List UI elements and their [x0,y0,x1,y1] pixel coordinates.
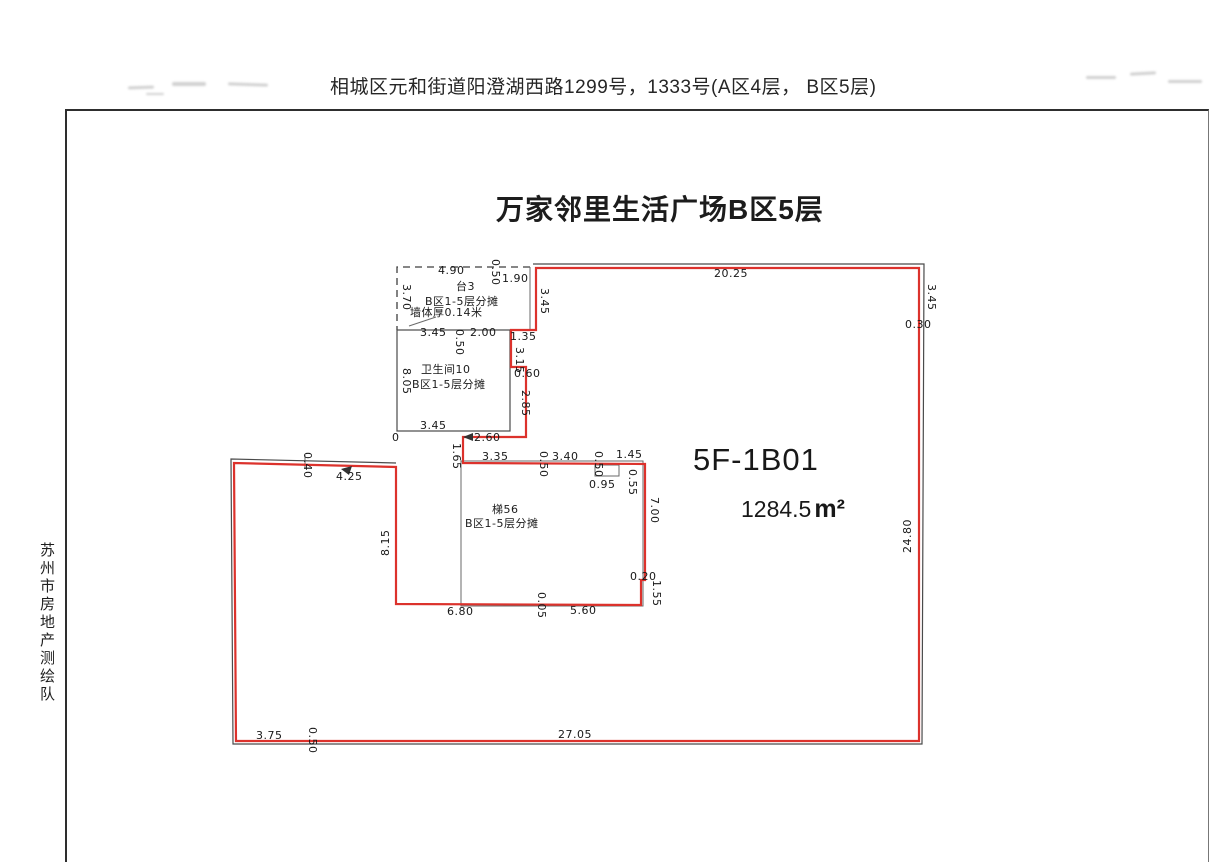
floor-plan: 4.900.501.903.70台3B区1-5层分摊墙体厚0.14米3.453.… [0,0,1214,862]
dimension-label: 0.30 [905,318,932,331]
dimension-label: 27.05 [558,728,592,741]
dimension-label: 3.75 [256,729,283,742]
room-label: 卫生间10 [421,362,471,376]
dimension-label: 0.55 [626,469,639,496]
dimension-label: 5.60 [570,604,597,617]
dimension-label: 0.50 [306,727,319,754]
dimension-label: 3.45 [925,284,938,311]
dimension-label: 20.25 [714,267,748,280]
dimension-label: 8.15 [379,530,392,557]
dimension-label: 0.60 [514,367,541,380]
dimension-label: 7.00 [648,497,661,524]
dimension-label: 2.60 [474,431,501,444]
dimension-label: 2.85 [519,390,532,417]
room-label: 台3 [456,279,475,293]
dimension-label: 1.45 [616,448,643,461]
dimension-label: 4.90 [438,264,465,277]
document-page: 相城区元和街道阳澄湖西路1299号，1333号(A区4层， B区5层) 苏州市房… [0,0,1214,862]
dimension-label: 3.35 [482,450,509,463]
dimension-label: 0.95 [589,478,616,491]
dimension-label: 2.00 [470,326,497,339]
room-label: B区1-5层分摊 [465,516,539,530]
stair-outline [461,461,643,606]
room-label: 墙体厚0.14米 [410,305,483,319]
dim-arrow [463,433,473,441]
dimension-label: 3.45 [538,288,551,315]
room-label: B区1-5层分摊 [412,377,486,391]
dimension-label: 1.55 [650,580,663,607]
dimension-label: 1.90 [502,272,529,285]
dimension-label: 0.50 [537,451,550,478]
dimension-label: 4.25 [336,470,363,483]
dimension-label: 6.80 [447,605,474,618]
dimension-labels: 4.900.501.903.70台3B区1-5层分摊墙体厚0.14米3.453.… [256,259,938,754]
dimension-label: 3.45 [420,419,447,432]
base-outline [231,264,924,744]
dimension-label: 0.50 [592,451,605,478]
dimension-label: 0.50 [489,259,502,286]
dimension-label: 1.35 [510,330,537,343]
dimension-label: 0.50 [453,329,466,356]
dimension-label: 3.40 [552,450,579,463]
dimension-label: 24.80 [901,519,914,553]
room-label: 梯56 [492,503,519,516]
dimension-label: 3.45 [420,326,447,339]
dimension-label: 0.05 [535,592,548,619]
dimension-label: 0 [392,431,400,444]
dimension-label: 1.65 [450,443,463,470]
unit-boundary-outline [234,268,919,741]
dimension-label: 0.40 [301,452,314,479]
